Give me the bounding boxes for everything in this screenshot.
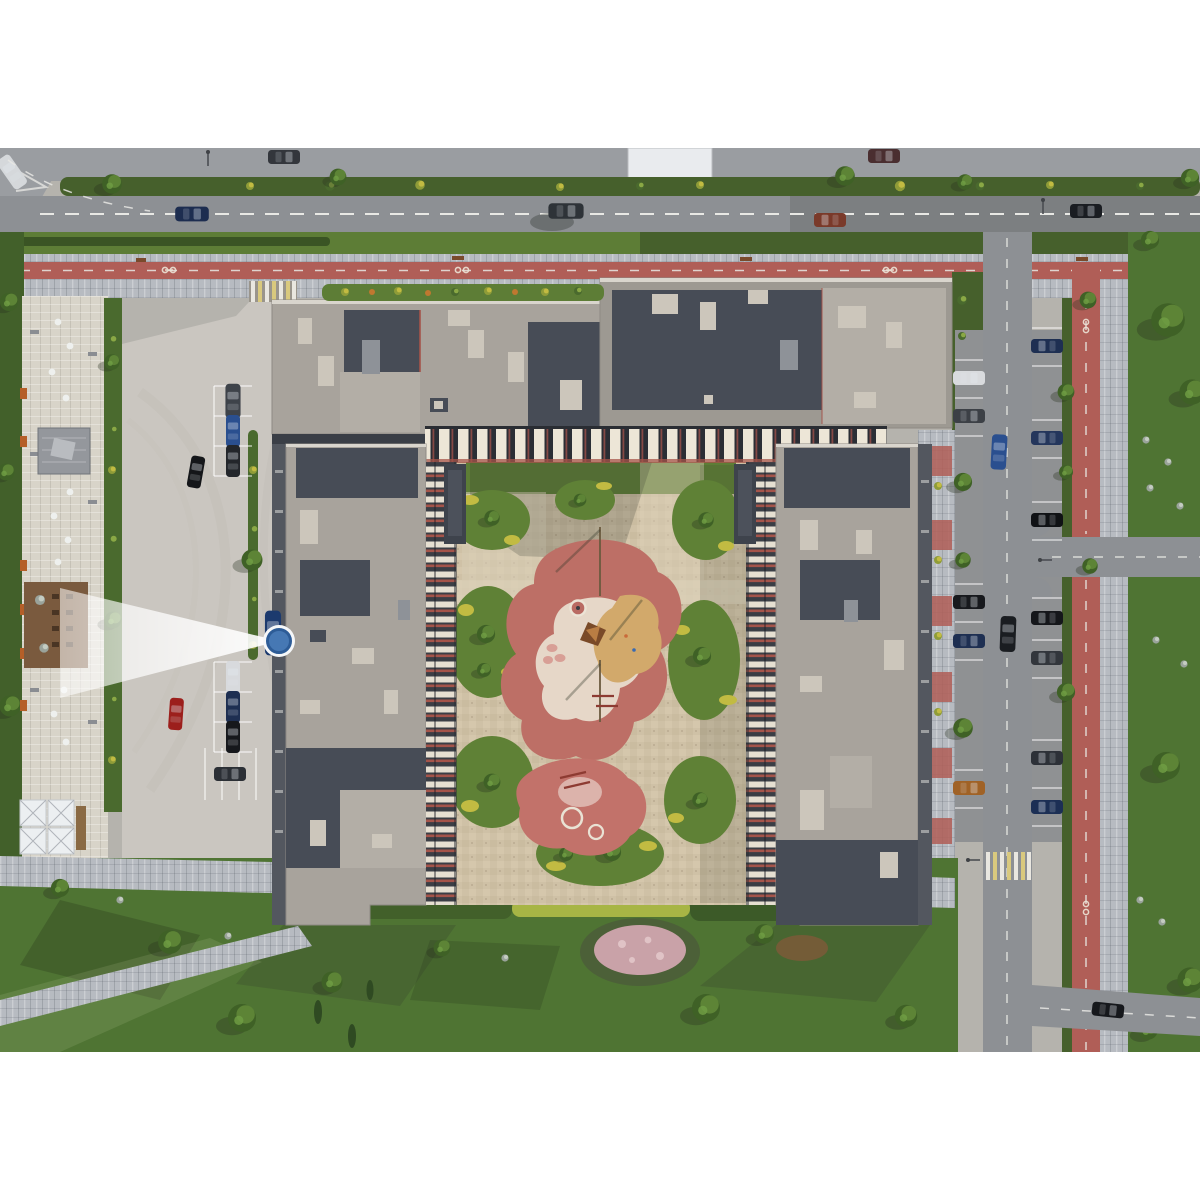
aerial-render-screenshot bbox=[0, 0, 1200, 1200]
marker-dot[interactable] bbox=[268, 630, 291, 653]
white-building-roof bbox=[628, 148, 712, 178]
aerial-render-image bbox=[0, 0, 1200, 1200]
hedge-plaza-east bbox=[104, 298, 122, 812]
paver-walk-east bbox=[1100, 298, 1128, 1052]
deck-bench bbox=[76, 806, 86, 850]
parking-bays-west bbox=[955, 330, 983, 842]
building-west-wing bbox=[272, 444, 457, 925]
flower-strip-north bbox=[322, 284, 604, 301]
blue-car-driving bbox=[990, 434, 1007, 470]
building-northwest bbox=[272, 300, 602, 446]
mulch-patch bbox=[776, 935, 828, 961]
building-northeast bbox=[600, 278, 952, 428]
letterbox-bottom bbox=[0, 1052, 1200, 1200]
plaza-promenade bbox=[22, 296, 108, 858]
crosswalk-west bbox=[249, 281, 297, 302]
black-car-driving-right bbox=[1000, 616, 1017, 652]
east-wing-outer-facade bbox=[918, 444, 932, 925]
hedge-parking bbox=[248, 430, 258, 660]
hedge-west-edge bbox=[0, 232, 24, 858]
bench bbox=[136, 258, 146, 262]
left-plaza bbox=[0, 232, 122, 858]
courtyard bbox=[448, 462, 746, 905]
west-wing-outer-facade bbox=[272, 444, 286, 925]
letterbox-top bbox=[0, 0, 1200, 148]
building-east-wing bbox=[746, 444, 932, 925]
red-car-driving bbox=[168, 698, 184, 731]
right-lawn bbox=[1128, 232, 1200, 1052]
flower-patch bbox=[594, 925, 686, 975]
pergola bbox=[38, 428, 90, 474]
